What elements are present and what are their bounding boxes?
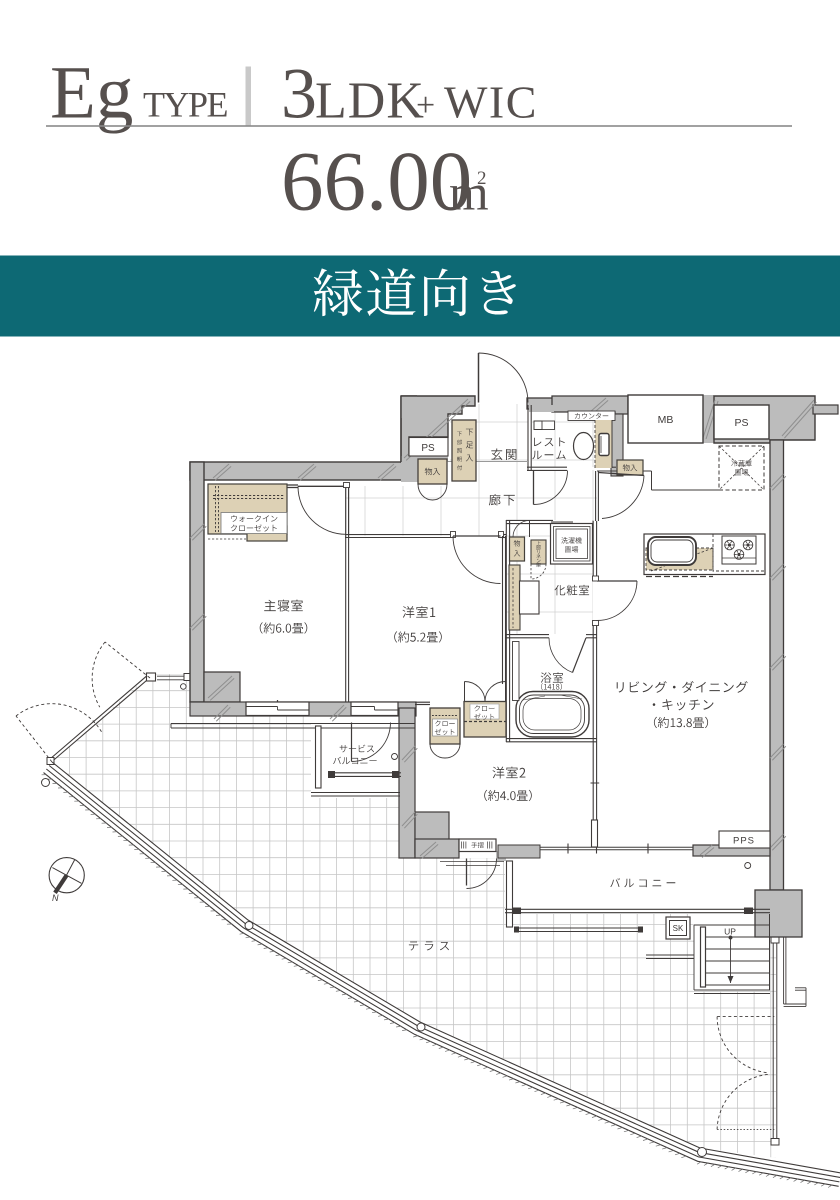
svg-text:PS: PS [734,417,748,429]
svg-text:UP: UP [724,927,736,937]
svg-text:66.00: 66.00 [281,135,472,229]
svg-text:MB: MB [658,414,674,426]
svg-text:N: N [52,893,59,903]
svg-text:+: + [416,87,435,124]
svg-text:TYPE: TYPE [143,85,228,125]
svg-text:Eg: Eg [50,52,133,135]
svg-text:PPS: PPS [733,836,755,847]
svg-text:WIC: WIC [444,77,538,128]
svg-text:SK: SK [673,924,684,933]
svg-text:PS: PS [421,443,435,454]
svg-text:3: 3 [281,54,317,134]
svg-text:LDK: LDK [315,73,425,130]
svg-text:2: 2 [477,168,487,189]
